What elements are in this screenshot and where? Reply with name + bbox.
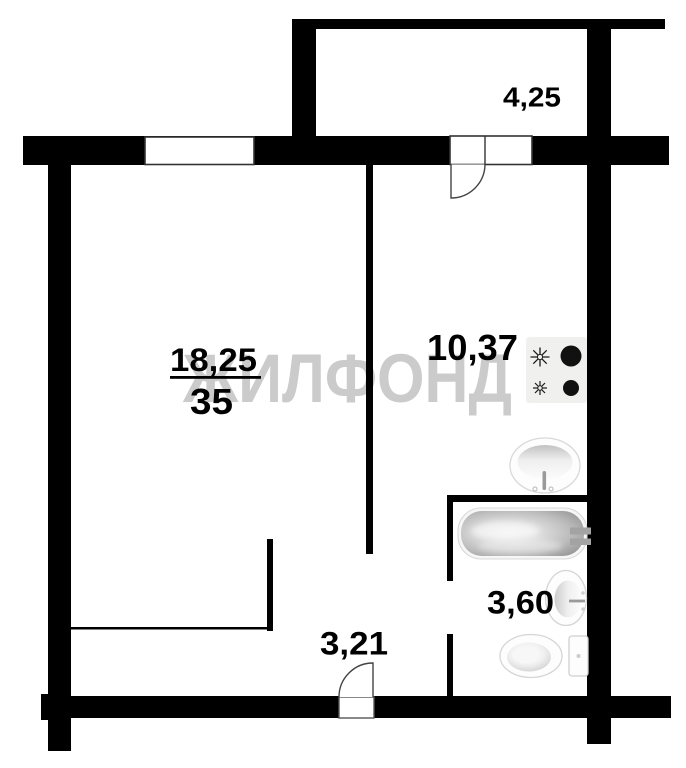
svg-text:18,25: 18,25	[170, 342, 257, 378]
svg-text:35: 35	[190, 381, 233, 422]
svg-text:4,25: 4,25	[503, 82, 561, 113]
svg-text:10,37: 10,37	[427, 327, 518, 368]
svg-text:3,60: 3,60	[487, 585, 554, 621]
svg-text:3,21: 3,21	[320, 626, 388, 662]
